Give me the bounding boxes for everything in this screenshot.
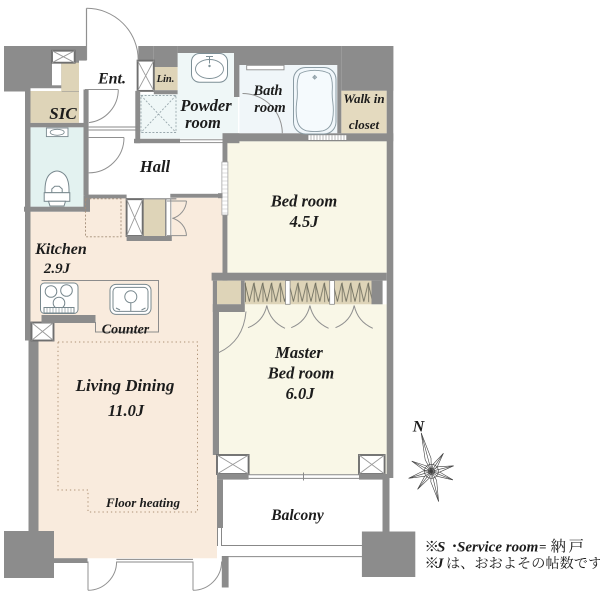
svg-text:J: J bbox=[435, 556, 444, 572]
svg-text:Service room: Service room bbox=[457, 540, 538, 556]
svg-text:N: N bbox=[412, 419, 426, 436]
svg-text:room: room bbox=[254, 100, 285, 116]
svg-text:Lin.: Lin. bbox=[156, 74, 175, 85]
svg-text:Bath: Bath bbox=[252, 83, 282, 99]
svg-text:Bed room: Bed room bbox=[267, 364, 335, 383]
svg-text:Ent.: Ent. bbox=[97, 71, 126, 88]
svg-text:Floor heating: Floor heating bbox=[105, 495, 181, 510]
svg-text:Kitchen: Kitchen bbox=[34, 241, 87, 258]
svg-text:Counter: Counter bbox=[102, 323, 150, 338]
svg-text:Walk in: Walk in bbox=[343, 91, 384, 106]
svg-text:Living Dining: Living Dining bbox=[75, 376, 175, 395]
svg-text:11.0J: 11.0J bbox=[108, 401, 145, 420]
svg-text:4.5J: 4.5J bbox=[289, 212, 320, 231]
svg-text:Bed room: Bed room bbox=[270, 192, 338, 211]
svg-text:closet: closet bbox=[349, 117, 380, 132]
svg-text:6.0J: 6.0J bbox=[286, 384, 316, 403]
svg-text:S: S bbox=[437, 540, 445, 556]
svg-text:room: room bbox=[185, 113, 221, 132]
svg-text:2.9J: 2.9J bbox=[43, 261, 71, 277]
svg-text:SIC: SIC bbox=[49, 104, 77, 123]
svg-text:Hall: Hall bbox=[139, 157, 171, 176]
svg-text:=: = bbox=[539, 539, 546, 554]
svg-text:Master: Master bbox=[274, 343, 323, 362]
svg-text:Balcony: Balcony bbox=[270, 507, 324, 524]
